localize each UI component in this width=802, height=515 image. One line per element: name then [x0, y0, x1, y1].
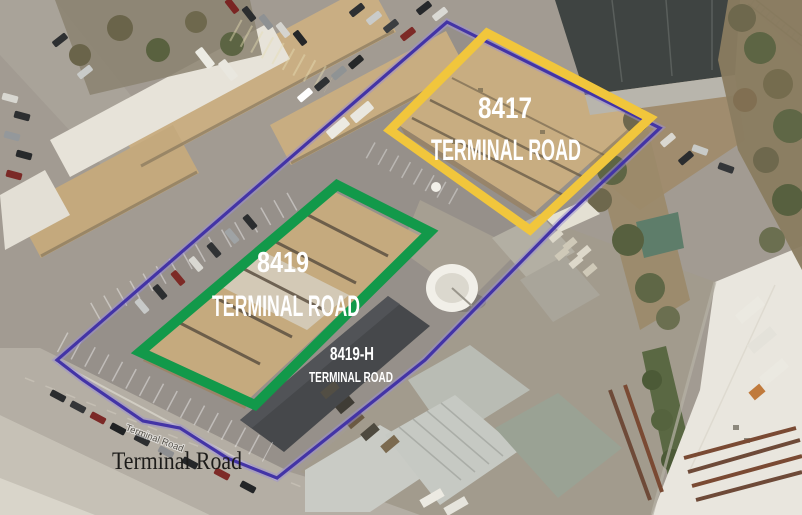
tree — [107, 15, 133, 41]
tree — [656, 306, 680, 330]
tree — [744, 32, 776, 64]
tree — [642, 370, 662, 390]
label-8417-number: 8417 — [478, 92, 532, 125]
label-8419h-street: TERMINAL ROAD — [309, 369, 393, 386]
annotated-aerial-photo: 8417 TERMINAL ROAD 8419 TERMINAL ROAD 84… — [0, 0, 802, 515]
label-8419-number: 8419 — [257, 247, 309, 279]
tree — [612, 224, 644, 256]
tree — [651, 409, 673, 431]
label-8417-street: TERMINAL ROAD — [431, 134, 581, 167]
tree — [759, 227, 785, 253]
label-8419h-number: 8419-H — [330, 344, 374, 364]
roof-unit — [733, 425, 739, 430]
tree — [146, 38, 170, 62]
tree — [733, 88, 757, 112]
small-dish — [431, 182, 441, 192]
tree — [753, 147, 779, 173]
tree — [728, 4, 756, 32]
tree — [635, 273, 665, 303]
tree — [763, 69, 793, 99]
tree — [185, 11, 207, 33]
label-8419-street: TERMINAL ROAD — [212, 290, 360, 323]
tree — [69, 44, 91, 66]
